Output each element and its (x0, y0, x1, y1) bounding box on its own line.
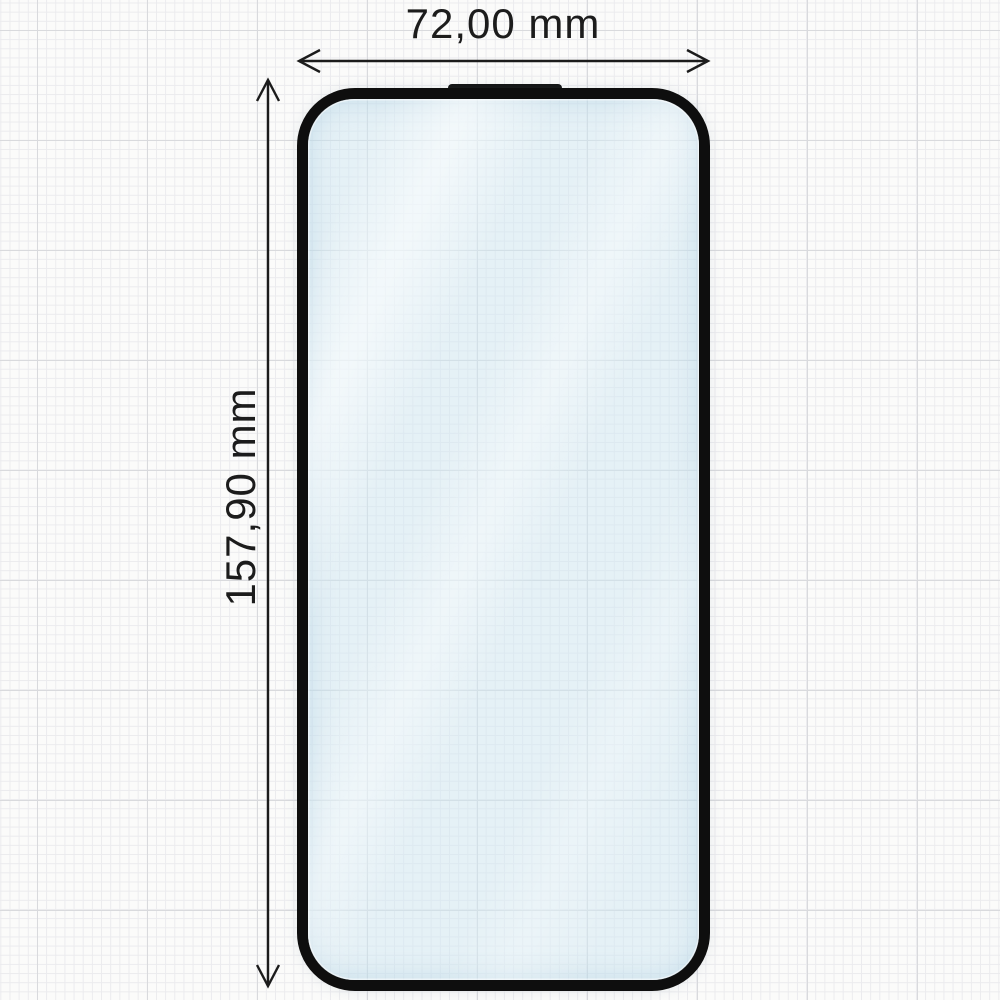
screen-protector-frame (297, 88, 710, 991)
width-dimension-label: 72,00 mm (406, 0, 601, 48)
glass-reflection (308, 99, 699, 980)
glass-surface (308, 99, 699, 980)
graph-paper-background: 72,00 mm 157,90 mm (0, 0, 1000, 1000)
width-dimension-arrow (299, 50, 708, 72)
height-dimension-label: 157,90 mm (217, 387, 265, 606)
